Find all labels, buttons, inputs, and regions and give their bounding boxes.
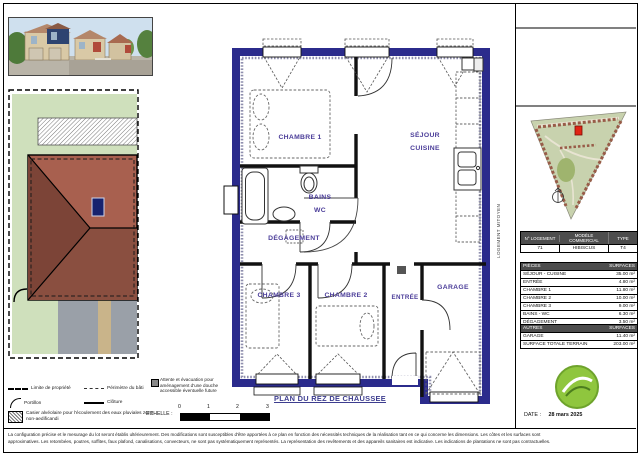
perimetre-bati-symbol <box>84 388 104 389</box>
legend-cloture-label: Clôture <box>107 400 122 405</box>
legend-limite-label: Limite de propriété <box>31 386 71 391</box>
table-row: GARAGE11.40 m² <box>521 332 637 340</box>
other-surface: 11.40 m² <box>599 333 637 340</box>
table-row: SÉJOUR - CUISINE35.00 m² <box>521 270 637 278</box>
table-row: CHAMBRE 210.00 m² <box>521 294 637 302</box>
right-panel-separator <box>515 4 516 428</box>
rooms-table-header-pieces: PIÈCES <box>521 263 599 270</box>
roof-plan <box>28 155 137 300</box>
entry-closet <box>397 266 406 274</box>
room-surface: 9.00 m² <box>599 303 637 310</box>
other-surface: 203.00 m² <box>599 341 637 348</box>
scale-seg-2 <box>210 414 239 420</box>
kitchen-sink <box>454 148 481 190</box>
roof-window <box>92 198 104 216</box>
lot-model: HIBISCUS <box>560 245 609 252</box>
garage-door <box>426 352 480 394</box>
scale-bar <box>180 413 270 421</box>
portillon-icon <box>10 398 21 408</box>
boiler-box <box>474 58 483 71</box>
footer-line-1: La configuration précise et le mesurage … <box>8 431 632 438</box>
right-panel-rules <box>516 28 636 106</box>
table-row: BAINS - WC6.30 m² <box>521 310 637 318</box>
scale-tick-2: 2 <box>236 404 239 410</box>
scale-tick-3: 3 <box>266 404 269 410</box>
table-row: ENTRÉE4.80 m² <box>521 278 637 286</box>
scale-tick-0: 0 <box>178 404 181 410</box>
room-surface: 4.80 m² <box>599 279 637 286</box>
room-name: CHAMBRE 1 <box>521 287 599 294</box>
rooms-table-header-surfaces: SURFACES <box>599 263 637 270</box>
room-label-chambre1: CHAMBRE 1 <box>258 134 342 141</box>
shower-note: Attente et évacuation pour aménagement d… <box>160 377 238 394</box>
lot-number: 71 <box>521 245 560 252</box>
table-row: CHAMBRE 39.00 m² <box>521 302 637 310</box>
room-surface: 6.30 m² <box>599 311 637 318</box>
legend-casier-label: Casier alvéolaire pour l'écoulement des … <box>26 411 154 422</box>
casier-hatch-symbol <box>8 411 23 423</box>
legend-portillon-label: Portillon <box>24 401 41 406</box>
location-map <box>531 112 626 219</box>
room-name: BAINS - WC <box>521 311 599 318</box>
scale-tick-1: 1 <box>207 404 210 410</box>
lot-table-col2: MODÈLE COMMERCIAL <box>560 232 609 244</box>
room-label-bains: BAINS <box>290 194 350 201</box>
table-row: CHAMBRE 111.80 m² <box>521 286 637 294</box>
legend-perimetre-label: Périmètre du bâti <box>107 386 144 391</box>
scale-seg-3 <box>240 414 269 420</box>
site-plan <box>9 90 138 358</box>
room-label-chambre2: CHAMBRE 2 <box>306 292 386 299</box>
limite-propriete-symbol <box>8 388 28 390</box>
table-row: SURFACE TOTALE TERRAIN203.00 m² <box>521 340 637 348</box>
room-label-sejour: SÉJOUR <box>385 132 465 139</box>
utility-box <box>224 186 238 214</box>
lot-table-col1: N° LOGEMENT <box>521 235 560 242</box>
plan-title: PLAN DU REZ DE CHAUSSEE <box>240 394 420 403</box>
date-line: DATE : 28 mars 2025 <box>524 412 582 418</box>
lot-table: N° LOGEMENT MODÈLE COMMERCIAL TYPE 71 HI… <box>520 231 638 253</box>
footer-disclaimer: La configuration précise et le mesurage … <box>4 428 636 450</box>
date-value: 28 mars 2025 <box>548 412 582 418</box>
others-surface-table: AUTRES SURFACES GARAGE11.40 m² SURFACE T… <box>520 324 638 349</box>
fixtures <box>224 58 483 394</box>
lot-table-col3: TYPE <box>609 235 637 242</box>
others-table-header: AUTRES <box>521 325 599 332</box>
bathtub <box>242 168 268 224</box>
room-surface: 11.80 m² <box>599 287 637 294</box>
lot-marker <box>575 126 582 135</box>
room-label-entree: ENTRÉE <box>382 294 428 301</box>
room-name: CHAMBRE 2 <box>521 295 599 302</box>
footer-line-2: approximatives. Les retombées, poutres, … <box>8 438 632 445</box>
room-surface: 35.00 m² <box>599 271 637 278</box>
room-label-wc: WC <box>290 207 350 214</box>
other-name: GARAGE <box>521 333 599 340</box>
other-name: SURFACE TOTALE TERRAIN <box>521 341 599 348</box>
others-table-header-surfaces: SURFACES <box>599 325 637 332</box>
room-name: CHAMBRE 3 <box>521 303 599 310</box>
bed-single-ch2 <box>316 306 378 346</box>
date-label: DATE : <box>524 412 541 418</box>
lot-type: T4 <box>609 245 637 252</box>
toilet <box>300 166 318 193</box>
room-name: ENTRÉE <box>521 279 599 286</box>
room-label-cuisine: CUISINE <box>385 145 465 152</box>
room-label-garage: GARAGE <box>424 284 482 291</box>
door-swings <box>262 58 486 379</box>
cloture-symbol <box>84 402 104 404</box>
floor-plan-walls <box>236 52 486 400</box>
room-label-degagement: DÉGAGEMENT <box>250 235 338 242</box>
scale-seg-1 <box>181 414 210 420</box>
room-name: SÉJOUR - CUISINE <box>521 271 599 278</box>
builder-logo <box>556 366 598 408</box>
bed-double <box>250 90 330 158</box>
casier-alveolaire-zone <box>38 118 137 145</box>
party-wall-label: LOGEMENT MITOYEN <box>496 168 508 258</box>
legend: Limite de propriété Périmètre du bâti Po… <box>8 384 156 426</box>
room-surface: 10.00 m² <box>599 295 637 302</box>
plan-sheet: CHAMBRE 1 SÉJOUR CUISINE BAINS WC DÉGAGE… <box>0 0 640 455</box>
